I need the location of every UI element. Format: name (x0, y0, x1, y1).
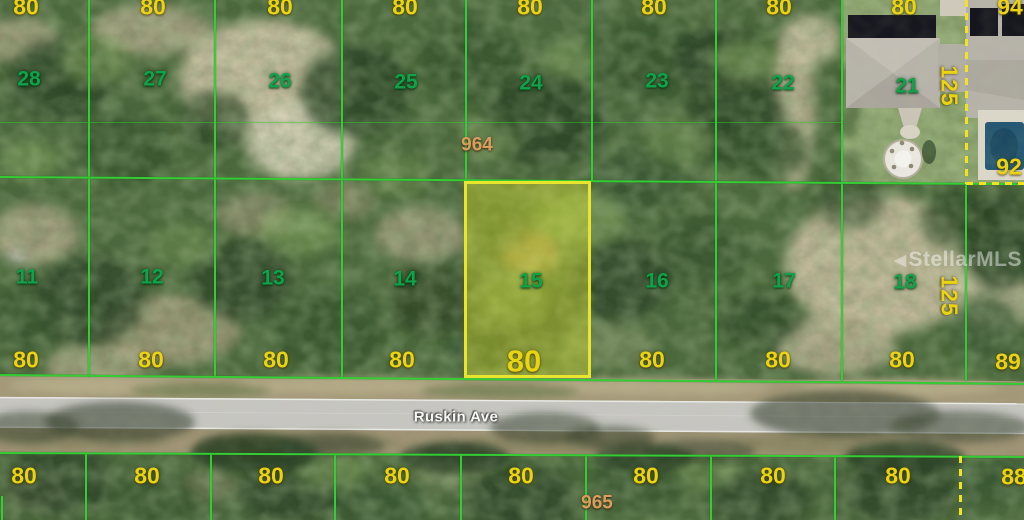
lot-boundary-line (85, 454, 87, 520)
lot-boundary-line (341, 0, 343, 182)
lot-number: 18 (893, 272, 916, 293)
adjacent-lot-width-label: 92 (996, 156, 1022, 179)
lot-number: 13 (261, 268, 284, 289)
lot-number: 27 (143, 69, 166, 90)
lot-boundary-line (710, 456, 712, 520)
stellar-mls-text: StellarMLS (908, 248, 1022, 272)
width-label: 80 (760, 465, 786, 488)
adjacent-lot-width-label: 88 (1001, 466, 1024, 489)
dashed-boundary-line (966, 182, 1024, 185)
lot-number: 14 (393, 269, 416, 290)
lot-number: 16 (645, 271, 668, 292)
lot-boundary-line (841, 0, 843, 183)
width-label: 80 (263, 349, 289, 372)
width-label: 80 (765, 349, 791, 372)
lot-boundary-line (0, 122, 843, 123)
lot-number: 12 (140, 267, 163, 288)
lot-number: 28 (17, 69, 40, 90)
lot-depth-label: 125 (938, 65, 961, 106)
lot-boundary-line (841, 182, 843, 381)
lot-boundary-line (334, 455, 336, 520)
width-label: 80 (267, 0, 293, 19)
width-label: 80 (13, 349, 39, 372)
width-label: 80 (258, 465, 284, 488)
lot-number: 26 (268, 71, 291, 92)
stellar-mls-logo-icon: ◀ (894, 251, 906, 269)
adjacent-lot-width-label: 89 (995, 351, 1021, 374)
lot-depth-label: 125 (938, 275, 961, 316)
lot-boundary-line (88, 179, 90, 377)
width-label: 80 (891, 0, 917, 19)
dashed-boundary-line (959, 456, 962, 520)
block-number-label: 964 (461, 136, 493, 155)
width-label: 80 (633, 465, 659, 488)
block-number-label: 965 (581, 494, 613, 513)
lot-number: 23 (645, 71, 668, 92)
lot-boundary-line (715, 0, 717, 183)
lot-boundary-line (715, 181, 717, 380)
width-label: 80 (134, 465, 160, 488)
width-label: 80 (508, 465, 534, 488)
width-label: 80 (11, 465, 37, 488)
lot-number: 17 (772, 271, 795, 292)
width-label: 80 (639, 349, 665, 372)
width-label: 80 (384, 465, 410, 488)
lot-number: 24 (519, 73, 542, 94)
width-label: 80 (507, 346, 541, 377)
width-label: 80 (389, 349, 415, 372)
plat-map-view[interactable]: ◀ StellarMLS 808080808080808028272625242… (0, 0, 1024, 520)
width-label: 80 (392, 0, 418, 19)
lot-number: 11 (16, 267, 38, 288)
width-label: 80 (641, 0, 667, 19)
lot-number: 15 (519, 271, 542, 292)
lot-boundary-line (965, 183, 967, 381)
width-label: 80 (766, 0, 792, 19)
lot-boundary-line (460, 455, 462, 520)
lot-number: 21 (895, 76, 918, 97)
lot-boundary-line (88, 0, 90, 181)
street-name-label: Ruskin Ave (414, 410, 499, 425)
width-label: 80 (138, 349, 164, 372)
width-label: 80 (13, 0, 39, 19)
width-label: 80 (517, 0, 543, 19)
dashed-boundary-line (965, 0, 968, 184)
lot-boundary-line (341, 180, 343, 378)
width-label: 80 (889, 349, 915, 372)
adjacent-lot-width-label: 94 (997, 0, 1023, 19)
width-label: 80 (885, 465, 911, 488)
lot-boundary-line (214, 179, 216, 377)
lot-boundary-line (1, 496, 3, 520)
width-label: 80 (140, 0, 166, 19)
stellar-mls-watermark: ◀ StellarMLS (894, 248, 1022, 272)
lot-number: 25 (394, 72, 417, 93)
lot-number: 22 (771, 73, 794, 94)
lot-boundary-line (591, 0, 593, 182)
lot-boundary-line (214, 0, 216, 181)
lot-boundary-line (210, 454, 212, 520)
lot-boundary-line (834, 457, 836, 520)
